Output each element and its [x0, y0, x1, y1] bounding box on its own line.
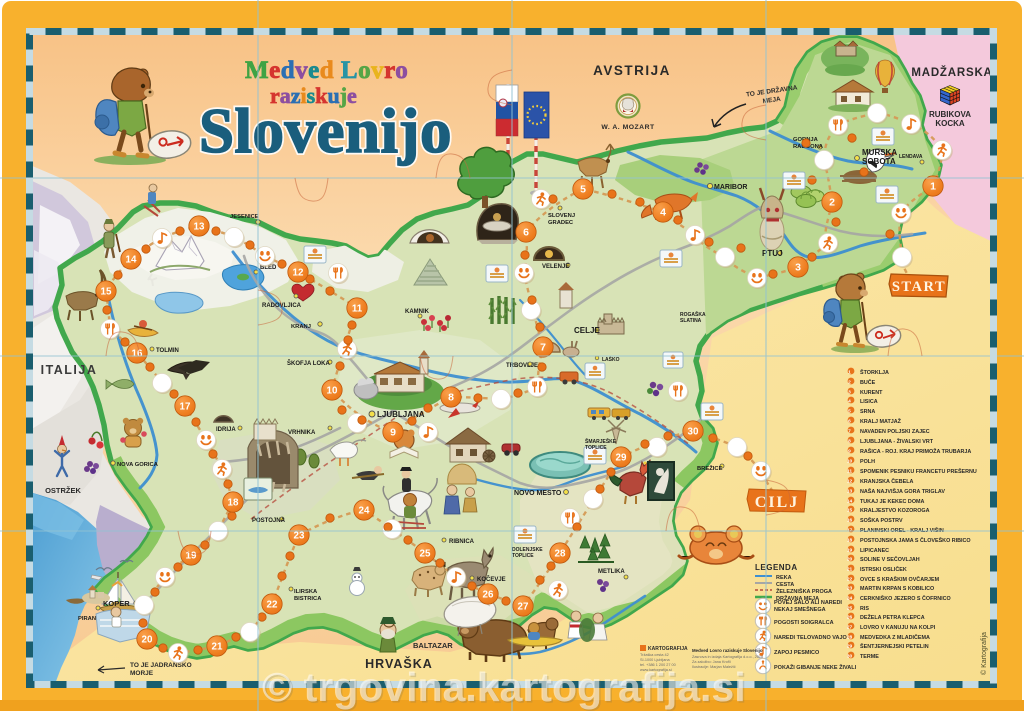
svg-text:MORJE: MORJE	[130, 670, 154, 677]
svg-text:SRNA: SRNA	[860, 409, 875, 415]
svg-text:POSTOJNA: POSTOJNA	[252, 518, 286, 524]
svg-text:© Kartografija: © Kartografija	[980, 632, 988, 675]
svg-text:© trgovina.kartografija.si: © trgovina.kartografija.si	[262, 664, 746, 710]
svg-text:IDRIJA: IDRIJA	[216, 427, 236, 433]
svg-text:25: 25	[420, 549, 431, 560]
svg-text:ŠKOFJA LOKA: ŠKOFJA LOKA	[287, 359, 330, 367]
svg-text:7: 7	[848, 429, 851, 435]
svg-text:26: 26	[847, 615, 853, 621]
svg-text:BISTRICA: BISTRICA	[294, 596, 322, 602]
svg-text:22: 22	[267, 600, 278, 611]
svg-text:KURENT: KURENT	[860, 390, 883, 396]
svg-text:VRHNIKA: VRHNIKA	[288, 430, 316, 436]
svg-text:CERKNIŠKO JEZERO S ČOFRNICO: CERKNIŠKO JEZERO S ČOFRNICO	[860, 594, 951, 602]
svg-text:LJUBLJANA - ŽIVALSKI VRT: LJUBLJANA - ŽIVALSKI VRT	[860, 437, 934, 445]
svg-text:LEGENDA: LEGENDA	[755, 563, 798, 572]
svg-text:BALTAZAR: BALTAZAR	[413, 641, 453, 650]
svg-text:18: 18	[847, 538, 853, 544]
svg-text:3: 3	[795, 262, 801, 274]
svg-text:RIS: RIS	[860, 606, 869, 612]
svg-text:Medved Lovro raziskuje Sloveni: Medved Lovro raziskuje Slovenijo	[692, 648, 763, 653]
svg-text:16: 16	[132, 349, 143, 360]
svg-text:11: 11	[352, 304, 363, 315]
svg-text:Zasnova in izdaja Kartografija: Zasnova in izdaja Kartografija d.o.o., 2…	[692, 655, 763, 659]
svg-text:BREŽICE: BREŽICE	[697, 464, 723, 472]
svg-text:29: 29	[847, 644, 853, 650]
svg-text:LENDAVA: LENDAVA	[899, 154, 923, 160]
svg-text:21: 21	[212, 642, 223, 653]
svg-text:NAŠA NAJVIŠJA GORA TRIGLAV: NAŠA NAJVIŠJA GORA TRIGLAV	[860, 487, 945, 495]
svg-text:CILJ: CILJ	[755, 494, 799, 511]
svg-text:LOVRO V KANUJU NA KOLPI: LOVRO V KANUJU NA KOLPI	[860, 625, 936, 631]
svg-text:16: 16	[847, 518, 853, 524]
svg-text:28: 28	[847, 635, 853, 641]
svg-text:KARTOGRAFIJA: KARTOGRAFIJA	[648, 646, 688, 652]
svg-text:19: 19	[847, 548, 853, 554]
svg-text:AVSTRIJA: AVSTRIJA	[593, 63, 671, 78]
svg-text:23: 23	[294, 531, 305, 542]
svg-text:Tržaška cesta 42: Tržaška cesta 42	[640, 653, 669, 657]
svg-text:TRBOVLJE: TRBOVLJE	[506, 363, 538, 369]
svg-text:POLH: POLH	[860, 459, 875, 465]
svg-text:MARIBOR: MARIBOR	[714, 184, 747, 191]
svg-text:REKA: REKA	[776, 575, 792, 581]
svg-text:KRANJ: KRANJ	[291, 324, 311, 330]
svg-text:14: 14	[126, 255, 137, 266]
svg-text:2: 2	[829, 197, 835, 209]
svg-text:15: 15	[101, 287, 112, 298]
svg-text:MEDVEDKA Z MLADIČEMA: MEDVEDKA Z MLADIČEMA	[860, 634, 930, 641]
svg-text:W. A. MOZART: W. A. MOZART	[601, 124, 655, 131]
svg-text:PTUJ: PTUJ	[762, 249, 782, 258]
svg-text:DEŽELA PETRA KLEPCA: DEŽELA PETRA KLEPCA	[860, 613, 925, 621]
svg-text:4: 4	[660, 207, 666, 219]
svg-text:7: 7	[540, 342, 546, 354]
svg-text:PLANINSKI OREL - KRALJ VIŠIN: PLANINSKI OREL - KRALJ VIŠIN	[860, 526, 944, 534]
svg-text:NOVA GORICA: NOVA GORICA	[117, 462, 159, 468]
svg-text:5: 5	[848, 409, 851, 415]
svg-text:6: 6	[848, 419, 851, 425]
svg-text:TOLMIN: TOLMIN	[156, 348, 179, 354]
svg-text:1: 1	[848, 370, 851, 376]
svg-text:BUČE: BUČE	[860, 379, 876, 386]
svg-text:18: 18	[228, 498, 239, 509]
svg-text:29: 29	[616, 453, 627, 464]
svg-text:RAŠICA - ROJ. KRAJ PRIMOŽA TRU: RAŠICA - ROJ. KRAJ PRIMOŽA TRUBARJA	[860, 447, 971, 455]
svg-text:23: 23	[847, 586, 853, 592]
svg-text:Medved Lovro: Medved Lovro	[245, 57, 408, 84]
svg-text:3: 3	[848, 390, 851, 396]
svg-text:6: 6	[523, 227, 529, 239]
svg-text:START: START	[892, 279, 946, 295]
svg-text:11: 11	[847, 469, 852, 475]
svg-text:ROGAŠKA: ROGAŠKA	[680, 310, 706, 318]
svg-text:Slovenijo: Slovenijo	[199, 96, 452, 166]
svg-text:28: 28	[555, 549, 566, 560]
svg-text:4: 4	[848, 399, 851, 405]
svg-text:JESENICE: JESENICE	[230, 214, 259, 220]
svg-text:MARTIN KRPAN S KOBILICO: MARTIN KRPAN S KOBILICO	[860, 586, 934, 592]
svg-text:NOVO MESTO: NOVO MESTO	[514, 490, 562, 497]
svg-text:LJUBLJANA: LJUBLJANA	[377, 410, 425, 419]
svg-text:RUBIKOVA: RUBIKOVA	[929, 110, 971, 119]
svg-text:27: 27	[847, 625, 853, 631]
svg-text:TERME: TERME	[860, 654, 879, 660]
svg-text:NAVADEN POLJSKI ZAJEC: NAVADEN POLJSKI ZAJEC	[860, 429, 930, 435]
svg-text:MURSKA: MURSKA	[862, 148, 897, 157]
svg-text:POVEJ ŠALO ALI NAREDI: POVEJ ŠALO ALI NAREDI	[774, 598, 842, 606]
svg-text:MADŽARSKA: MADŽARSKA	[911, 66, 992, 79]
svg-text:22: 22	[847, 577, 853, 583]
svg-text:5: 5	[580, 184, 586, 196]
svg-text:KRANJSKA ČEBELA: KRANJSKA ČEBELA	[860, 478, 914, 485]
svg-text:24: 24	[847, 596, 853, 602]
svg-text:ILIRSKA: ILIRSKA	[294, 589, 318, 595]
svg-text:LISICA: LISICA	[860, 399, 878, 405]
svg-text:OSTRŽEK: OSTRŽEK	[45, 486, 81, 495]
svg-text:19: 19	[186, 551, 197, 562]
svg-text:ŠTORKLJA: ŠTORKLJA	[860, 368, 889, 376]
svg-text:METLIKA: METLIKA	[598, 569, 625, 575]
svg-text:VELENJE: VELENJE	[542, 264, 569, 270]
svg-text:KAMNIK: KAMNIK	[405, 309, 430, 315]
svg-text:26: 26	[483, 590, 494, 601]
svg-text:SOBOTA: SOBOTA	[862, 157, 896, 166]
svg-text:13: 13	[847, 489, 853, 495]
svg-text:27: 27	[518, 602, 529, 613]
svg-text:CESTA: CESTA	[776, 582, 794, 588]
svg-text:SI-1000 Ljubljana: SI-1000 Ljubljana	[640, 658, 670, 662]
svg-text:25: 25	[847, 606, 853, 612]
svg-text:POKAŽI GIBANJE NEKE ŽIVALI: POKAŽI GIBANJE NEKE ŽIVALI	[774, 663, 857, 671]
svg-text:15: 15	[847, 508, 853, 514]
svg-text:ITALIJA: ITALIJA	[41, 363, 98, 377]
svg-text:POSTOJNSKA JAMA S ČLOVEŠKO RIB: POSTOJNSKA JAMA S ČLOVEŠKO RIBICO	[860, 536, 971, 544]
svg-text:30: 30	[847, 654, 853, 660]
svg-text:SPOMENIK PESNIKU FRANCETU PREŠ: SPOMENIK PESNIKU FRANCETU PREŠERNU	[860, 467, 977, 475]
svg-text:TUKAJ JE KEKEC DOMA: TUKAJ JE KEKEC DOMA	[860, 499, 925, 505]
svg-text:KRALJ MATJAŽ: KRALJ MATJAŽ	[860, 417, 902, 425]
svg-text:21: 21	[847, 567, 853, 573]
svg-text:KOČEVJE: KOČEVJE	[477, 576, 506, 583]
svg-text:ISTRSKI OSLIČEK: ISTRSKI OSLIČEK	[860, 566, 907, 573]
svg-text:OVCE S KRAŠKIM OVČARJEM: OVCE S KRAŠKIM OVČARJEM	[860, 575, 940, 583]
svg-text:SLATINA: SLATINA	[680, 318, 702, 324]
svg-text:9: 9	[848, 449, 851, 455]
svg-text:9: 9	[390, 427, 396, 439]
svg-text:SOLINE V SEČOVLJAH: SOLINE V SEČOVLJAH	[860, 556, 920, 563]
svg-text:PIRAN: PIRAN	[78, 616, 96, 622]
svg-text:1: 1	[930, 181, 936, 193]
svg-text:NAREDI TELOVADNO VAJO: NAREDI TELOVADNO VAJO	[774, 635, 848, 641]
svg-text:20: 20	[847, 557, 853, 563]
svg-text:POGOSTI SOIGRALCA: POGOSTI SOIGRALCA	[774, 620, 834, 626]
svg-text:2: 2	[848, 380, 851, 386]
svg-text:12: 12	[293, 268, 304, 279]
svg-text:KOPER: KOPER	[103, 599, 130, 608]
svg-text:10: 10	[847, 459, 853, 465]
svg-text:ŠENTJERNEJSKI PETELIN: ŠENTJERNEJSKI PETELIN	[860, 642, 929, 650]
svg-text:24: 24	[359, 506, 370, 517]
svg-text:LIPICANEC: LIPICANEC	[860, 548, 889, 554]
svg-text:NEKAJ SMEŠNEGA: NEKAJ SMEŠNEGA	[774, 605, 826, 613]
svg-text:KRALJESTVO KOZOROGA: KRALJESTVO KOZOROGA	[860, 508, 930, 514]
svg-text:12: 12	[847, 479, 853, 485]
svg-text:8: 8	[848, 439, 851, 445]
svg-text:ŠMARJEŠKE: ŠMARJEŠKE	[585, 437, 617, 445]
svg-text:10: 10	[327, 386, 338, 397]
svg-text:ŽELEZNIŠKA PROGA: ŽELEZNIŠKA PROGA	[776, 587, 832, 595]
svg-text:SOŠKA POSTRV: SOŠKA POSTRV	[860, 516, 903, 524]
svg-text:ZAPOJ PESMICO: ZAPOJ PESMICO	[774, 650, 820, 656]
svg-text:GRADEC: GRADEC	[548, 220, 574, 226]
svg-text:17: 17	[180, 402, 191, 413]
svg-text:TOPLICE: TOPLICE	[585, 445, 607, 451]
svg-text:SLOVENJ: SLOVENJ	[548, 213, 575, 219]
svg-text:13: 13	[194, 222, 205, 233]
svg-text:RIBNICA: RIBNICA	[449, 539, 475, 545]
svg-text:30: 30	[688, 427, 699, 438]
svg-text:20: 20	[142, 635, 153, 646]
svg-text:TOPLICE: TOPLICE	[512, 553, 534, 559]
svg-text:KOCKA: KOCKA	[935, 119, 965, 128]
svg-text:8: 8	[448, 392, 454, 404]
svg-text:CELJE: CELJE	[574, 326, 600, 335]
svg-text:14: 14	[847, 499, 853, 505]
